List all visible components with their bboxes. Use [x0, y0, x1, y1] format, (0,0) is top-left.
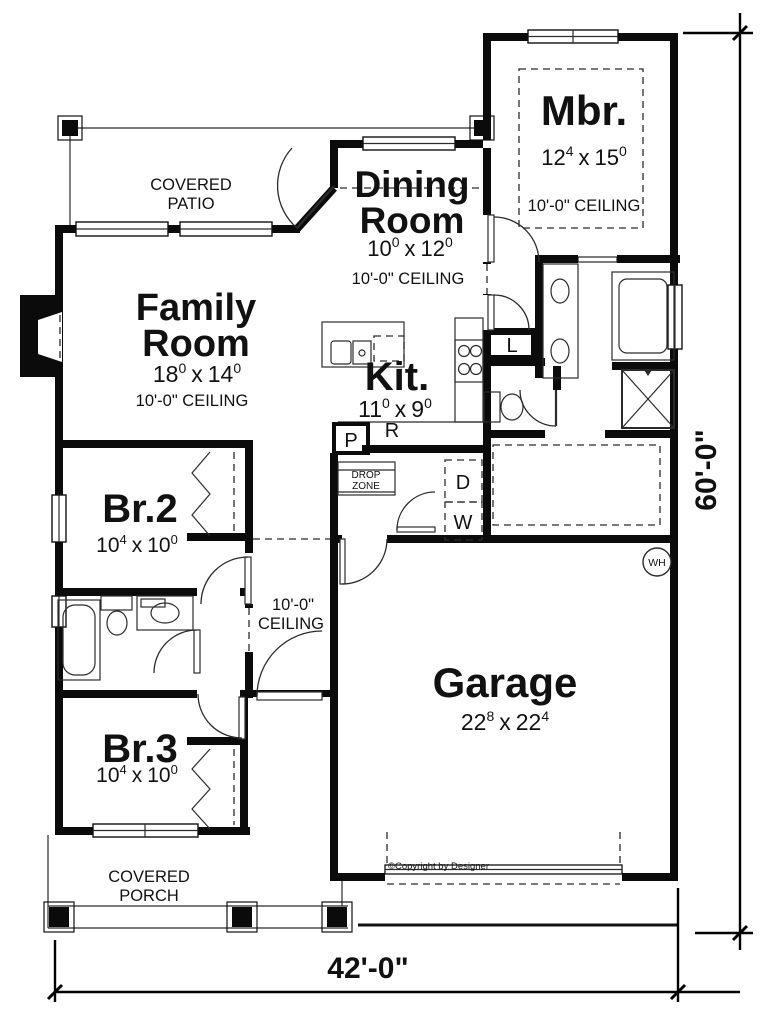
floor-plan-drawing: WH Mbr. 124x150 10'-0" CEILING Dining Ro… [0, 0, 771, 1024]
family-name-2: Room [142, 323, 250, 365]
family-ceiling: 10'-0" CEILING [136, 392, 249, 410]
hall-bath-toilet [101, 596, 132, 635]
master-vanity [543, 264, 578, 378]
width-dimension: 42'-0" [327, 952, 408, 985]
drop-zone-label-1: DROP [352, 470, 381, 481]
garage-door [385, 832, 622, 884]
water-heater: WH [643, 548, 671, 576]
laundry-door [397, 492, 435, 532]
garage-dims: 228x224 [461, 708, 549, 735]
drop-zone-label-2: ZONE [352, 481, 380, 492]
depth-dimension: 60'-0" [690, 429, 723, 510]
front-door [257, 631, 322, 700]
master-shower [622, 370, 674, 428]
range-label: R [385, 420, 399, 442]
garage-entry-door [340, 539, 387, 584]
family-window-2 [180, 222, 272, 236]
patio-post [62, 120, 78, 136]
floor-plan-page: WH Mbr. 124x150 10'-0" CEILING Dining Ro… [0, 0, 771, 1024]
dining-name-1: Dining [354, 164, 469, 205]
porch-label-1: COVERED [108, 868, 190, 886]
br2-door [201, 557, 251, 604]
patio-label-1: COVERED [150, 176, 232, 194]
pass-through-opening [578, 257, 617, 262]
porch-post [232, 907, 252, 927]
br2-dims: 104x100 [96, 532, 178, 557]
mbr-door [488, 215, 539, 262]
dining-dims: 100x120 [367, 234, 453, 261]
dining-ceiling: 10'-0" CEILING [352, 270, 465, 288]
master-hall-door [488, 295, 529, 330]
copyright-note: ©Copyright by Designer [388, 861, 489, 872]
porch-post [327, 907, 347, 927]
toilet-room-door [520, 390, 556, 426]
br2-name: Br.2 [102, 487, 178, 531]
hall-ceiling-1: 10'-0" [272, 596, 314, 614]
br3-dims: 104x100 [96, 762, 178, 787]
porch-label-2: PORCH [119, 887, 179, 905]
dryer-label: D [456, 472, 470, 494]
mbr-ceiling: 10'-0" CEILING [528, 197, 641, 215]
walkin-closet-shelves [493, 445, 660, 525]
patio-label-2: PATIO [167, 195, 214, 213]
br2-closet-bifold [192, 452, 210, 536]
kitchen-dims: 110x90 [358, 395, 432, 422]
pantry-label: P [344, 430, 357, 452]
master-tub-window [668, 285, 682, 349]
br3-window [93, 824, 198, 837]
hall-ceiling-2: CEILING [258, 615, 324, 633]
br3-closet-bifold [192, 749, 210, 829]
fireplace [20, 295, 62, 377]
family-dims: 180x140 [153, 360, 241, 387]
washer-label: W [454, 512, 473, 534]
hall-bath-tub [58, 600, 100, 680]
master-tub [612, 272, 674, 360]
family-window-1 [76, 222, 168, 236]
br3-door [198, 694, 245, 739]
garage-name: Garage [433, 659, 578, 706]
bath-door [154, 630, 200, 673]
kitchen-name: Kit. [365, 355, 429, 399]
water-heater-label: WH [648, 557, 666, 569]
mbr-name: Mbr. [541, 87, 627, 134]
range-cooktop [455, 340, 483, 382]
br2-window [52, 495, 66, 542]
dining-window [363, 137, 455, 150]
hall-bath-vanity [137, 596, 193, 630]
porch-post [49, 907, 69, 927]
mbr-dims: 124x150 [541, 143, 627, 170]
linen-label: L [506, 335, 517, 357]
mbr-window [528, 30, 618, 43]
